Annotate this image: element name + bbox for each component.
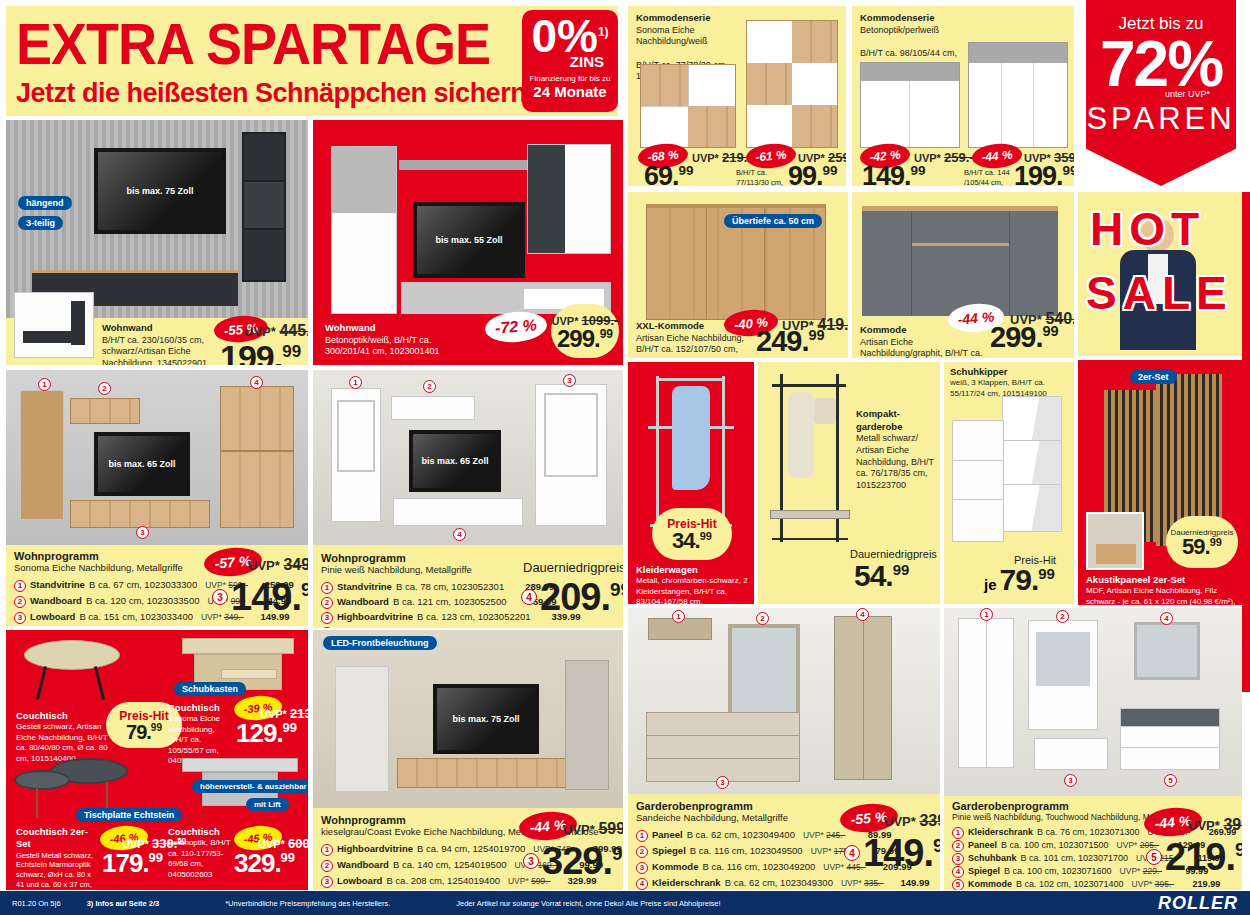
mirror xyxy=(728,624,800,716)
product-info: Wohnwand Betonoptik/weiß, B/H/T ca. 300/… xyxy=(325,322,475,358)
price: 209.99 xyxy=(540,580,623,614)
inset-shelf xyxy=(71,301,85,345)
price-line: 5219.99 xyxy=(1146,840,1242,874)
product-info: Akustikpaneel 2er-Set MDF, Artisan Eiche… xyxy=(1086,574,1236,605)
coat xyxy=(788,392,814,478)
list-item: 2WandboardB ca. 140 cm, 1254019500UVP* 1… xyxy=(321,857,517,873)
list-item: 4SpiegelB ca. 100 cm, 1023071600UVP* 229… xyxy=(952,865,1142,878)
schuhbank xyxy=(1034,738,1108,770)
item-marker: 3 xyxy=(563,374,576,387)
tv-screen: bis max. 75 Zoll xyxy=(433,684,539,754)
product-photo-wohnwand: bis max. 75 Zoll hängend 3-teilig xyxy=(6,120,308,318)
item-ref: 4 xyxy=(844,845,860,861)
product-tile-wohnprogramm-pinie: bis max. 65 Zoll 1 2 3 4 Wohnprogramm Pi… xyxy=(313,370,623,628)
product-desc: B/H/T ca. 230/160/35 cm, schwarz/Artisan… xyxy=(102,335,210,365)
cabinet-door xyxy=(641,106,688,147)
item-marker: 2 xyxy=(756,612,769,625)
list-item: 2WandboardB ca. 121 cm, 102305250059.99 xyxy=(321,594,506,609)
product-info: Kommode Artisan Eiche Nachbildung/graphi… xyxy=(860,324,985,358)
door-seam xyxy=(863,617,864,779)
product-desc: Betonoptik, B/H/T ca. 110-177/53-69/68 c… xyxy=(168,838,231,878)
feature-pill: hängend xyxy=(18,196,72,210)
list-item: 5KommodeB ca. 102 cm, 1023071400UVP* 395… xyxy=(952,878,1142,890)
vitrine-glass xyxy=(528,145,565,253)
ribbon-line2: SPAREN xyxy=(1086,101,1236,137)
product-desc: Gestell Metall schwarz, Echtstein Marmor… xyxy=(16,851,93,890)
cabinet-doors xyxy=(969,63,1067,147)
product-photo-wohnprogramm: bis max. 65 Zoll 1 2 3 4 xyxy=(6,370,308,545)
product-photo-kommode-graphit xyxy=(862,206,1058,316)
product-tile-kommodenserie-sonoma: Kommodenserie Sonoma Eiche Nachbildung/w… xyxy=(628,6,846,186)
price: 129.99 xyxy=(236,722,297,745)
product-desc: Artisan Eiche Nachbildung/graphit, B/H/T… xyxy=(860,337,982,358)
product-info: Couchtisch Betonoptik, B/H/T ca. 110-177… xyxy=(168,826,232,880)
uvp-price: UVP* 399.- xyxy=(1188,816,1242,834)
mirror-inset xyxy=(1036,632,1090,686)
product-tile-schuhkipper: Schuhkipper weiß, 3 Klappen, B/H/T ca. 5… xyxy=(944,362,1074,604)
product-photo-wohnprogramm: bis max. 75 Zoll xyxy=(313,630,623,808)
vitrine-glass xyxy=(337,400,375,473)
item-ref: 5 xyxy=(1146,849,1162,865)
dress xyxy=(672,386,710,490)
product-tile-garderobe-pinie: 1 2 3 4 5 Garderobenprogramm Pinie weiß … xyxy=(944,608,1242,890)
inset-lowboard xyxy=(23,331,77,343)
price-prefix: je xyxy=(984,576,997,593)
item-ref: 3 xyxy=(523,853,539,869)
tv-screen: bis max. 65 Zoll xyxy=(409,430,501,492)
product-name: Akustikpaneel 2er-Set xyxy=(1086,574,1185,585)
list-item: 1StandvitrineB ca. 67 cm, 1023033300UVP*… xyxy=(14,577,206,593)
product-desc: Sonoma Eiche Nachbildung/weiß xyxy=(636,25,708,47)
price: 219.99 xyxy=(1165,840,1242,874)
highboardvitrine xyxy=(535,384,607,526)
product-desc: Betonoptik/weiß, B/H/T ca. 300/201/41 cm… xyxy=(325,335,440,357)
product-name: Kommodenserie xyxy=(860,12,934,23)
handle-strip xyxy=(911,243,1009,246)
price: 199.99 xyxy=(1014,164,1074,186)
tv-size-note: bis max. 65 Zoll xyxy=(421,456,488,466)
list-item: 2SpiegelB ca. 116 cm, 1023049500UVP* 175… xyxy=(636,843,834,859)
lowboard xyxy=(70,500,210,528)
lowboard xyxy=(397,758,577,788)
list-item: 1KleiderschrankB ca. 76 cm, 1023071300UV… xyxy=(952,826,1142,839)
vitrine-glass xyxy=(544,393,597,477)
drawer-line xyxy=(647,735,799,736)
door-seam xyxy=(1009,211,1010,316)
page-edge-accent xyxy=(1242,192,1250,692)
price-line: 3149.99 xyxy=(212,580,308,614)
product-name: XXL-Kommode xyxy=(636,320,704,331)
cabinet-door xyxy=(747,105,792,147)
product-name: Wohnwand xyxy=(325,322,375,333)
rack-bar xyxy=(656,378,725,381)
product-name: Wohnwand xyxy=(102,322,152,333)
price: 99.99 xyxy=(788,164,838,186)
product-tile-wohnprogramm-kieselgrau: bis max. 75 Zoll LED-Frontbeleuchtung Wo… xyxy=(313,630,623,890)
feature-pill: LED-Frontbeleuchtung xyxy=(323,636,437,650)
tv-size-note: bis max. 65 Zoll xyxy=(108,459,175,469)
uvp-price: UVP* 219.- xyxy=(692,150,752,165)
product-tile-wohnwand-schwarz: bis max. 75 Zoll hängend 3-teilig Wohnwa… xyxy=(6,120,308,365)
price-label: Dauerniedrigpreis xyxy=(523,560,623,575)
product-info: Wohnwand B/H/T ca. 230/160/35 cm, schwar… xyxy=(102,322,214,365)
product-photo-garderobe: 1 2 3 4 5 xyxy=(944,608,1242,796)
item-marker: 1 xyxy=(672,610,685,623)
product-desc: Betonoptik/perlweiß xyxy=(860,25,939,35)
cabinet-door xyxy=(910,81,959,147)
list-item: 3KommodeB ca. 116 cm, 1023049200UVP* 445… xyxy=(636,859,834,875)
list-item: 1PaneelB ca. 62 cm, 1023049400UVP* 245.-… xyxy=(636,827,834,843)
price: 59.99 xyxy=(1182,537,1222,557)
price: 329.99 xyxy=(234,852,295,875)
product-desc: Gestell schwarz, Artisan Eiche Nachbildu… xyxy=(16,722,108,762)
table-leg xyxy=(94,666,105,700)
rack-pole xyxy=(722,376,725,526)
flap xyxy=(1003,441,1061,485)
lowboard xyxy=(393,498,523,526)
list-item: 4KleiderschrankB ca. 62 cm, 1023049300UV… xyxy=(636,875,834,890)
feature-pill: 2er-Set xyxy=(1130,370,1177,384)
ribbon-percent: 72% xyxy=(1086,34,1236,95)
nesting-table-small xyxy=(14,770,70,790)
feature-pill: mit Lift xyxy=(246,798,289,811)
price: 69.99 xyxy=(644,164,694,186)
price: 179.99 xyxy=(102,852,163,875)
cabinet-door xyxy=(641,65,688,106)
cabinet-top xyxy=(861,63,959,81)
product-name: Couchtisch xyxy=(168,702,220,713)
footer-availability: Jeder Artikel nur solange Vorrat reicht,… xyxy=(456,899,720,908)
cabinet-door xyxy=(1002,63,1035,147)
price: 299.99 xyxy=(557,328,613,350)
tv-screen: bis max. 55 Zoll xyxy=(413,202,525,278)
hot-sale-banner: HOT SALE xyxy=(1078,192,1242,356)
uvp-price: UVP* 599.- xyxy=(563,820,623,838)
hot-sale-line2: SALE xyxy=(1086,270,1233,316)
shoe-cabinet-open xyxy=(1002,396,1062,532)
item-marker: 2 xyxy=(1056,610,1069,623)
lift-table-top xyxy=(182,758,298,772)
item-marker: 4 xyxy=(856,608,869,621)
wood-table-top xyxy=(182,638,294,654)
door-seam xyxy=(986,619,987,767)
flap xyxy=(953,461,1003,501)
price: 149.99 xyxy=(231,580,308,614)
vitrine xyxy=(527,144,611,254)
price: 79.99 xyxy=(126,723,162,741)
product-name: Couchtisch 2er-Set xyxy=(16,826,88,849)
list-item: 3LowboardB ca. 208 cm, 1254019400UVP* 59… xyxy=(321,873,517,889)
promo-subtitle: Jetzt die heißesten Schnäppchen sichern! xyxy=(16,78,535,109)
price: 299.99 xyxy=(990,324,1059,350)
uvp-price: UVP* 349.- xyxy=(248,556,308,574)
price-line: 4209.99 xyxy=(521,580,623,614)
price-line: 3329.99 xyxy=(523,844,623,878)
product-name: Kommode xyxy=(860,324,906,335)
shelf-unit xyxy=(242,132,286,282)
zins-footnote: 1) xyxy=(598,25,609,39)
shelf xyxy=(244,134,284,182)
hook-bar xyxy=(772,384,846,387)
price-blob: UVP* 1099.- 299.99 xyxy=(551,304,619,358)
price: 34.99 xyxy=(672,531,712,551)
zins-months: 24 Monate xyxy=(526,83,614,100)
product-photo-wohnprogramm: bis max. 65 Zoll 1 2 3 4 xyxy=(313,370,623,545)
product-info: Schuhkipper weiß, 3 Klappen, B/H/T ca. 5… xyxy=(950,366,1070,399)
price: 149.99 xyxy=(862,164,926,186)
drawer xyxy=(1121,727,1219,748)
kommode xyxy=(646,712,800,782)
product-tile-kleiderwagen: Preis-Hit 34.99 Kleiderwagen Metall, chr… xyxy=(628,362,754,604)
header-banner: EXTRA SPARTAGE Jetzt die heißesten Schnä… xyxy=(6,6,618,116)
product-desc: Artisan Eiche Nachbildung, B/H/T ca. 152… xyxy=(636,333,744,358)
product-name: Kompakt-garderobe xyxy=(856,408,902,432)
feature-pill: Schubkasten xyxy=(174,682,246,696)
cabinet-door xyxy=(688,106,735,147)
product-tile-garderobe-sandeiche: 1 2 3 4 Garderobenprogramm Sandeiche Nac… xyxy=(628,608,940,890)
wandboard xyxy=(70,398,140,424)
product-tile-kommode-graphit: -44 % UVP* 540.- 299.99 Kommode Artisan … xyxy=(852,192,1074,358)
save-ribbon: Jetzt bis zu 72% unter UVP* SPAREN xyxy=(1086,0,1236,186)
item-marker: 1 xyxy=(349,376,362,389)
cabinet-panel xyxy=(332,147,396,213)
list-item: 2PaneelB ca. 100 cm, 1023071500UVP* 205.… xyxy=(952,839,1142,852)
item-marker: 3 xyxy=(136,526,149,539)
list-item: 4StandvitrineB ca. 72 cm, 1254019600UVP*… xyxy=(321,889,517,890)
price-blob: Dauerniedrigpreis 59.99 xyxy=(1166,516,1238,568)
tv-screen: bis max. 65 Zoll xyxy=(94,432,190,496)
feature-pill: Übertiefe ca. 50 cm xyxy=(724,214,822,228)
product-photo-kommode-small xyxy=(640,64,736,148)
product-info: Kompakt-garderobe Metall schwarz/ Artisa… xyxy=(856,408,936,492)
paneel xyxy=(1028,620,1098,730)
price: 79.99 xyxy=(1000,566,1055,593)
product-tile-akustikpaneel: 2er-Set Dauerniedrigpreis 59.99 Akustikp… xyxy=(1078,360,1242,605)
kleiderschrank xyxy=(834,616,892,780)
item-marker: 5 xyxy=(1164,774,1177,787)
inset-dresser xyxy=(1096,544,1136,564)
product-photo-sideboard-small xyxy=(860,62,960,148)
item-marker: 1 xyxy=(980,608,993,621)
rack-pole xyxy=(656,376,659,526)
list-item: 3LowboardB ca. 151 cm, 1023033400UVP* 34… xyxy=(14,609,206,625)
cabinet-door xyxy=(792,105,837,147)
item-marker: 4 xyxy=(1160,612,1173,625)
wandboard xyxy=(391,396,475,420)
price: 329.99 xyxy=(542,844,623,878)
list-item: 4LowboardB ca. 147 cm, 1023052400209.99 xyxy=(321,624,506,628)
product-desc: Metall, chromfarben-schwarz, 2 Kleiderst… xyxy=(636,576,748,604)
price: 149.99 xyxy=(863,836,940,870)
product-tile-kommodenserie-beton: Kommodenserie Betonoptik/perlweiß B/H/T … xyxy=(852,6,1074,186)
cabinet-door xyxy=(861,81,910,147)
discount-badge: -72 % xyxy=(484,309,548,344)
footer-disclaimer: *Unverbindliche Preisempfehlung des Hers… xyxy=(225,899,390,908)
tall-cabinet xyxy=(331,146,397,314)
door-seam xyxy=(911,211,912,316)
product-tile-wohnprogramm-sonoma: bis max. 65 Zoll 1 2 3 4 Wohnprogramm So… xyxy=(6,370,308,626)
uvp-price: UVP* 339.- xyxy=(884,812,940,830)
price-line: je79.99 xyxy=(984,566,1055,593)
drawer-line xyxy=(221,450,293,452)
product-photo-garderobe: 1 2 3 4 xyxy=(628,608,940,794)
product-info: XXL-Kommode Artisan Eiche Nachbildung, B… xyxy=(636,320,746,358)
inset-photo xyxy=(14,292,94,358)
kommode xyxy=(1120,708,1220,770)
list-item: 1HighboardvitrineB ca. 94 cm, 1254019700… xyxy=(321,841,517,857)
kleiderschrank xyxy=(958,618,1014,768)
standvitrine xyxy=(331,388,381,522)
product-name: Couchtisch xyxy=(16,710,68,721)
cabinet-door xyxy=(792,21,837,63)
product-name: Kommodenserie xyxy=(636,12,710,23)
cabinet-door xyxy=(792,63,837,105)
roller-logo: ROLLER xyxy=(1158,893,1238,914)
flap xyxy=(1003,397,1061,441)
cabinet-door xyxy=(969,63,1002,147)
shoe-cabinet-closed xyxy=(952,420,1004,542)
product-photo-sideboard-large xyxy=(968,42,1068,148)
zins-finance-line: Finanzierung für bis zu xyxy=(526,74,614,83)
drawer xyxy=(221,669,277,679)
item-marker: 1 xyxy=(38,378,51,391)
price-blob: Preis-Hit 34.99 xyxy=(652,508,732,560)
item-marker: 3 xyxy=(716,776,729,789)
highboardvitrine xyxy=(565,660,609,790)
door-seam xyxy=(706,208,707,319)
list-item: 4HighboardB ca. 116 cm, 1023033200UVP* 5… xyxy=(14,625,206,626)
table-leg xyxy=(36,666,47,700)
flyer-page: EXTRA SPARTAGE Jetzt die heißesten Schnä… xyxy=(0,0,1250,915)
price-line: 4149.99 xyxy=(844,836,940,870)
cabinet-doors xyxy=(861,81,959,147)
product-info: Kleiderwagen Metall, chromfarben-schwarz… xyxy=(636,564,748,604)
product-desc: Metall schwarz/ Artisan Eiche Nachbildun… xyxy=(856,433,934,490)
cabinet-drawer xyxy=(688,65,735,106)
price: 54.99 xyxy=(854,562,909,589)
product-info: Couchtisch Gestell schwarz, Artisan Eich… xyxy=(16,710,108,764)
product-tile-couchtische: Couchtisch Gestell schwarz, Artisan Eich… xyxy=(6,630,308,890)
product-info: Couchtisch 2er-Set Gestell Metall schwar… xyxy=(16,826,98,890)
footer-code: R01.20 On 5|6 xyxy=(12,899,61,908)
inset-photo xyxy=(1086,512,1144,570)
product-info: Couchtisch Sonoma Eiche Nachbildung, B/H… xyxy=(168,702,234,766)
shelf xyxy=(244,182,284,230)
item-ref: 3 xyxy=(212,589,228,605)
shoe-shelf xyxy=(772,538,848,540)
product-tile-wohnwand-beton: bis max. 55 Zoll -72 % UVP* 1099.- 299.9… xyxy=(313,120,623,365)
round-table-top xyxy=(24,640,120,670)
list-item: 3SchuhbankB ca. 101 cm, 1023071700UVP* 2… xyxy=(952,852,1142,865)
price: 199.99 xyxy=(220,342,301,365)
flap xyxy=(953,421,1003,461)
list-item: 2WandboardB ca. 120 cm, 1023033500UVP* 9… xyxy=(14,593,206,609)
product-name: Couchtisch xyxy=(168,826,220,837)
list-item: 1StandvitrineB ca. 78 cm, 1023052301289.… xyxy=(321,579,506,594)
tv-size-note: bis max. 55 Zoll xyxy=(435,235,502,245)
feature-pill: höhenverstell- & ausziehbar xyxy=(192,780,308,793)
standvitrine xyxy=(20,390,64,520)
cabinet-top xyxy=(969,43,1067,63)
product-name: Schuhkipper xyxy=(950,366,1008,377)
item-marker: 4 xyxy=(250,376,263,389)
hot-sale-line1: HOT xyxy=(1090,206,1205,252)
item-marker: 2 xyxy=(423,380,436,393)
footer-bar: R01.20 On 5|6 3) Infos auf Seite 2/3 *Un… xyxy=(0,891,1250,915)
item-marker: 4 xyxy=(453,528,466,541)
product-desc: weiß, 3 Klappen, B/H/T ca. 55/117/24 cm,… xyxy=(950,378,1047,397)
cabinet-door xyxy=(1034,63,1067,147)
feature-pill: 3-teilig xyxy=(18,216,63,230)
item-marker: 3 xyxy=(1064,774,1077,787)
standvitrine xyxy=(335,666,389,792)
top-drawer xyxy=(1121,709,1219,727)
zero-percent-financing-badge: 0%1) ZINS Finanzierung für bis zu 24 Mon… xyxy=(522,10,618,112)
tv-size-note: bis max. 75 Zoll xyxy=(126,186,193,196)
cabinet-door xyxy=(747,63,792,105)
tv-screen: bis max. 75 Zoll xyxy=(94,148,226,234)
bench-seat xyxy=(770,510,850,519)
item-ref: 4 xyxy=(521,589,537,605)
product-dims: B/H/T ca. 98/105/44 cm, xyxy=(860,48,957,58)
table-leg xyxy=(36,788,38,818)
bag xyxy=(814,398,836,424)
highboard xyxy=(220,386,294,528)
list-item: 3HighboardvitrineB ca. 123 cm, 102305220… xyxy=(321,609,506,624)
spiegel xyxy=(1134,622,1200,680)
product-tile-xxl-kommode: Übertiefe ca. 50 cm -40 % UVP* 419.- 249… xyxy=(628,192,848,358)
promo-title: EXTRA SPARTAGE xyxy=(16,15,490,75)
product-tile-kompaktgarderobe: Kompakt-garderobe Metall schwarz/ Artisa… xyxy=(758,362,940,604)
cabinet-door xyxy=(747,21,792,63)
price: 249.99 xyxy=(756,328,825,354)
product-photo-kommode-tall xyxy=(746,20,838,148)
feature-pill: Tischplatte Echtstein xyxy=(76,808,182,822)
product-name: Kleiderwagen xyxy=(636,564,698,575)
drawer-line xyxy=(647,758,799,759)
variant-dims: B/H/T ca. 144 /105/44 cm, 1254020900 xyxy=(964,168,1014,186)
tv-size-note: bis max. 75 Zoll xyxy=(452,714,519,724)
zins-percent: 0%1) xyxy=(526,16,614,57)
item-marker: 2 xyxy=(98,382,111,395)
flap xyxy=(1003,485,1061,531)
variant-dims: B/H/T ca. 77/113/30 cm, 1023015903 xyxy=(736,168,788,186)
product-desc: MDF, Artisan Eiche Nachbildung, Filz sch… xyxy=(1086,586,1235,605)
footer-info: 3) Infos auf Seite 2/3 xyxy=(87,899,160,908)
